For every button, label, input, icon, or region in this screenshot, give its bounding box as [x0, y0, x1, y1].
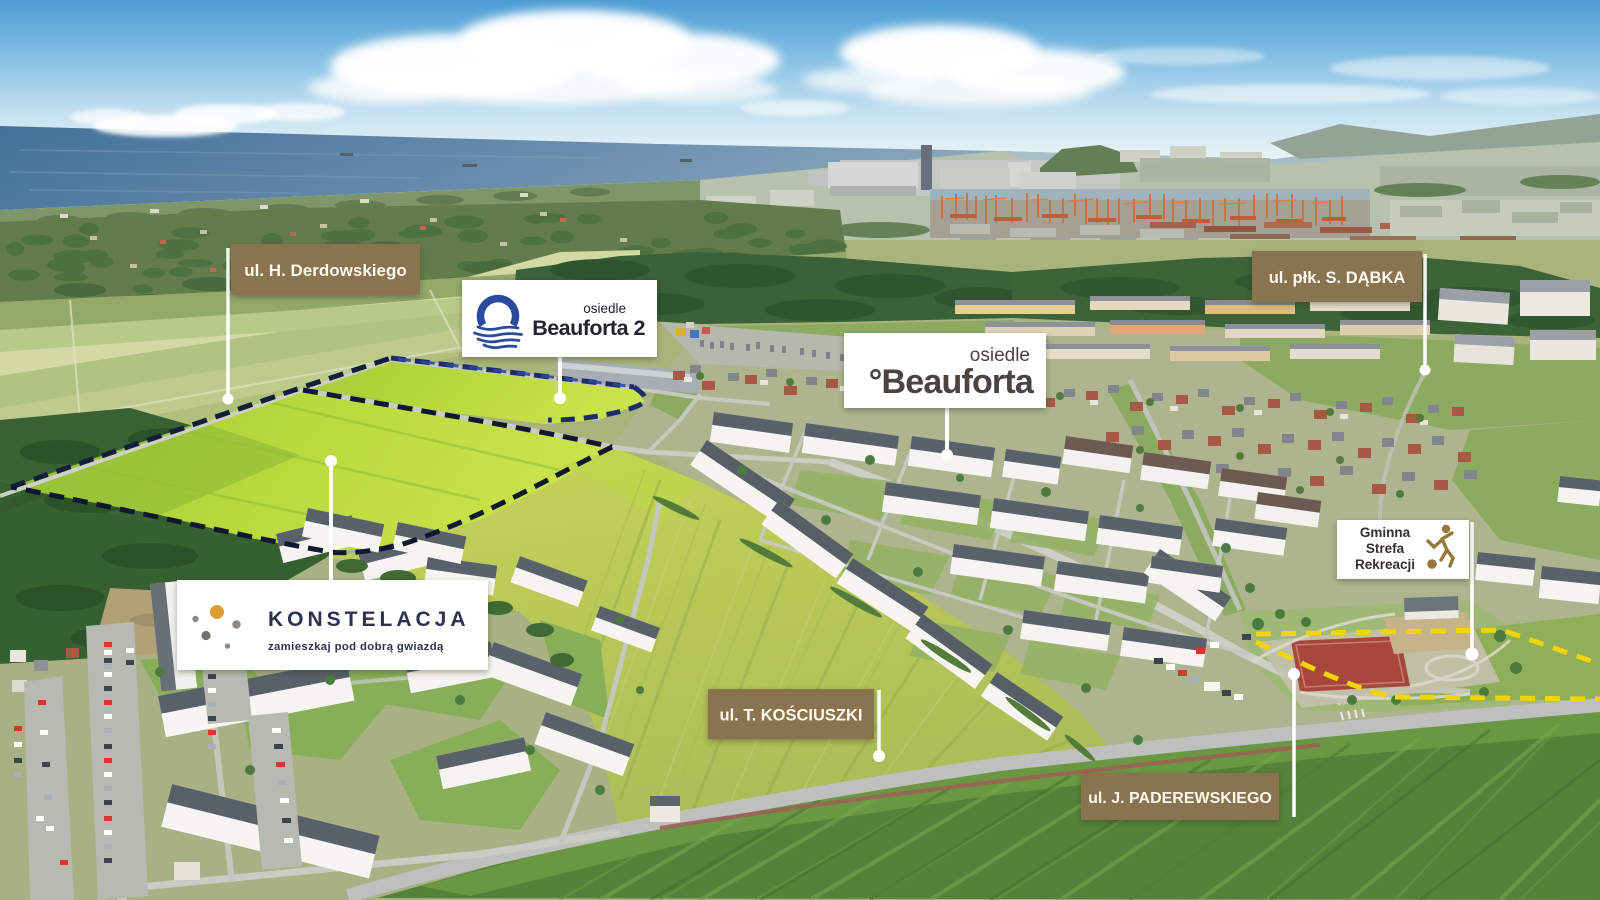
svg-text:ul. H. Derdowskiego: ul. H. Derdowskiego — [244, 261, 406, 280]
svg-text:°Beauforta: °Beauforta — [869, 363, 1035, 401]
svg-text:zamieszkaj pod dobrą gwiazdą: zamieszkaj pod dobrą gwiazdą — [268, 641, 444, 653]
svg-text:ul. J. PADEREWSKIEGO: ul. J. PADEREWSKIEGO — [1088, 790, 1272, 807]
svg-text:osiedle: osiedle — [583, 301, 626, 316]
svg-text:Rekreacji: Rekreacji — [1355, 557, 1415, 572]
svg-text:ul. płk. S. DĄBKA: ul. płk. S. DĄBKA — [1269, 269, 1406, 287]
svg-text:Gminna: Gminna — [1360, 525, 1411, 540]
svg-text:Beauforta 2: Beauforta 2 — [532, 316, 645, 340]
svg-text:ul. T. KOŚCIUSZKI: ul. T. KOŚCIUSZKI — [719, 706, 862, 725]
svg-text:KONSTELACJA: KONSTELACJA — [268, 608, 470, 631]
svg-text:Strefa: Strefa — [1366, 541, 1405, 556]
